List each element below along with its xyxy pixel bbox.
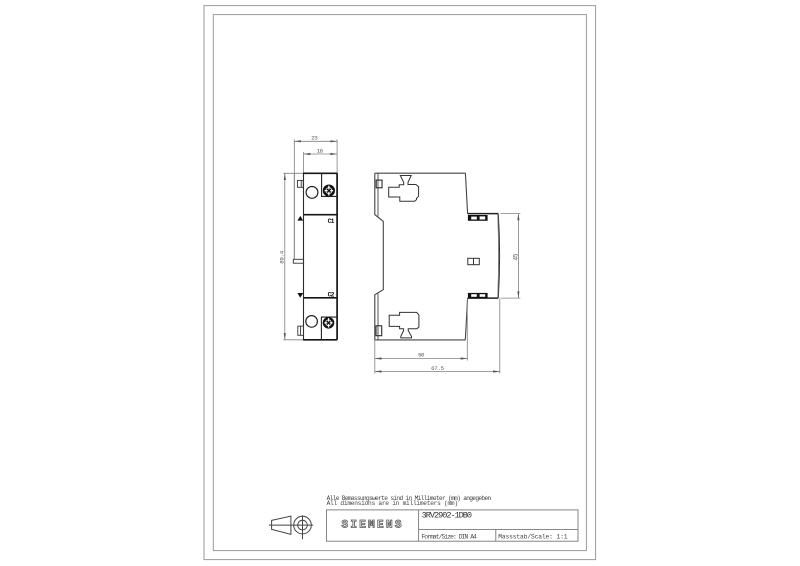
svg-text:89.4: 89.4 xyxy=(279,250,286,264)
svg-text:3RV2902-1DB0: 3RV2902-1DB0 xyxy=(422,511,473,521)
svg-text:C1: C1 xyxy=(328,218,335,225)
svg-text:Massstab/Scale: 1:1: Massstab/Scale: 1:1 xyxy=(498,533,568,540)
svg-text:SIEMENS: SIEMENS xyxy=(341,519,402,531)
svg-text:C2: C2 xyxy=(328,291,335,298)
svg-text:45: 45 xyxy=(513,253,520,260)
svg-text:18: 18 xyxy=(317,147,324,154)
svg-text:67.5: 67.5 xyxy=(431,365,445,372)
svg-text:All dimensions are in millimet: All dimensions are in millimeters (mm) xyxy=(327,500,459,507)
svg-text:50: 50 xyxy=(418,352,425,359)
svg-text:23: 23 xyxy=(311,135,318,142)
svg-text:Format/Size: DIN A4: Format/Size: DIN A4 xyxy=(421,533,477,540)
